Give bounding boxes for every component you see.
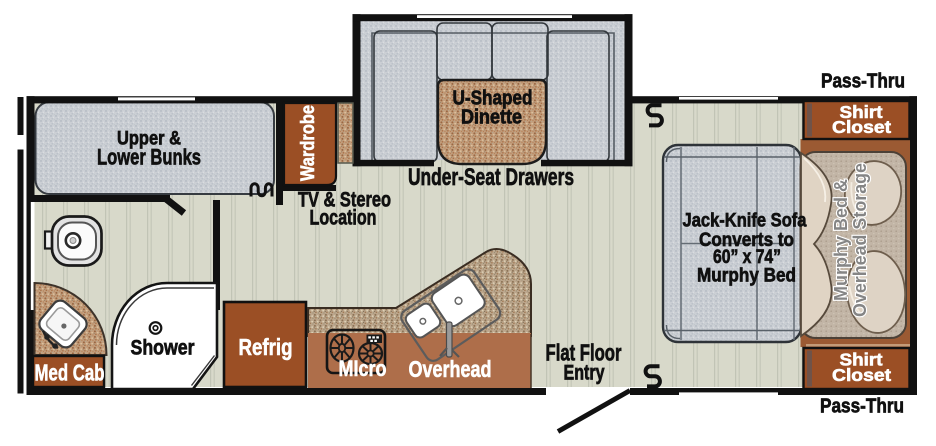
svg-text:Murphy Bed &: Murphy Bed & bbox=[831, 179, 851, 301]
svg-text:Murphy Bed: Murphy Bed bbox=[697, 265, 796, 287]
svg-text:Refrig: Refrig bbox=[239, 334, 293, 360]
svg-text:MIcro: MIcro bbox=[339, 356, 387, 381]
svg-text:Overhead: Overhead bbox=[409, 356, 492, 382]
svg-text:Under-Seat Drawers: Under-Seat Drawers bbox=[408, 164, 574, 191]
svg-text:Wardrobe: Wardrobe bbox=[298, 105, 319, 181]
svg-text:Closet: Closet bbox=[832, 117, 891, 137]
svg-text:Shower: Shower bbox=[131, 336, 196, 360]
svg-text:Lower Bunks: Lower Bunks bbox=[97, 145, 201, 170]
svg-text:Overhead Storage: Overhead Storage bbox=[850, 163, 870, 317]
svg-text:Location: Location bbox=[310, 207, 377, 230]
svg-text:Dinette: Dinette bbox=[461, 106, 522, 129]
svg-text:Entry: Entry bbox=[564, 362, 605, 385]
svg-text:Pass-Thru: Pass-Thru bbox=[820, 395, 904, 418]
svg-text:Closet: Closet bbox=[832, 365, 891, 385]
svg-text:Pass-Thru: Pass-Thru bbox=[821, 70, 905, 93]
svg-text:Med Cab: Med Cab bbox=[35, 360, 105, 386]
